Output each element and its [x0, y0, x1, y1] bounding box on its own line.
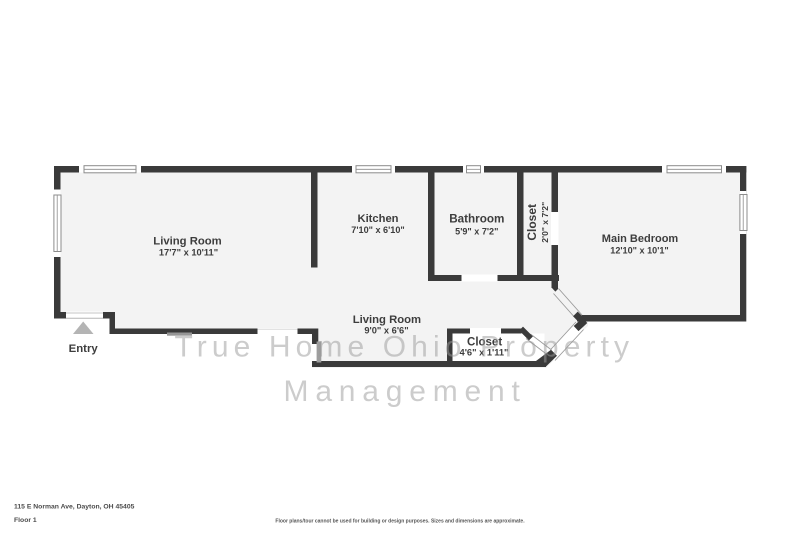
svg-text:Living Room: Living Room [153, 235, 221, 247]
svg-text:2'0" x 7'2": 2'0" x 7'2" [540, 202, 550, 243]
svg-text:Main Bedroom: Main Bedroom [602, 233, 679, 245]
svg-text:True Home Ohio Property: True Home Ohio Property [174, 331, 634, 364]
svg-text:Floor 1: Floor 1 [14, 517, 37, 524]
svg-text:12'10" x 10'1": 12'10" x 10'1" [610, 246, 668, 256]
svg-text:115 E Norman Ave, Dayton, OH 4: 115 E Norman Ave, Dayton, OH 45405 [14, 503, 135, 510]
svg-text:Closet: Closet [525, 204, 539, 241]
svg-text:17'7" x 10'11": 17'7" x 10'11" [159, 248, 218, 258]
svg-text:Bathroom: Bathroom [449, 213, 504, 226]
svg-text:5'9" x 7'2": 5'9" x 7'2" [455, 226, 498, 236]
svg-text:Floor plans/tour cannot be use: Floor plans/tour cannot be used for buil… [275, 518, 525, 524]
svg-text:Management: Management [284, 375, 527, 408]
svg-text:7'10" x 6'10": 7'10" x 6'10" [351, 225, 404, 235]
svg-text:Entry: Entry [69, 343, 99, 355]
svg-text:Kitchen: Kitchen [357, 213, 398, 225]
